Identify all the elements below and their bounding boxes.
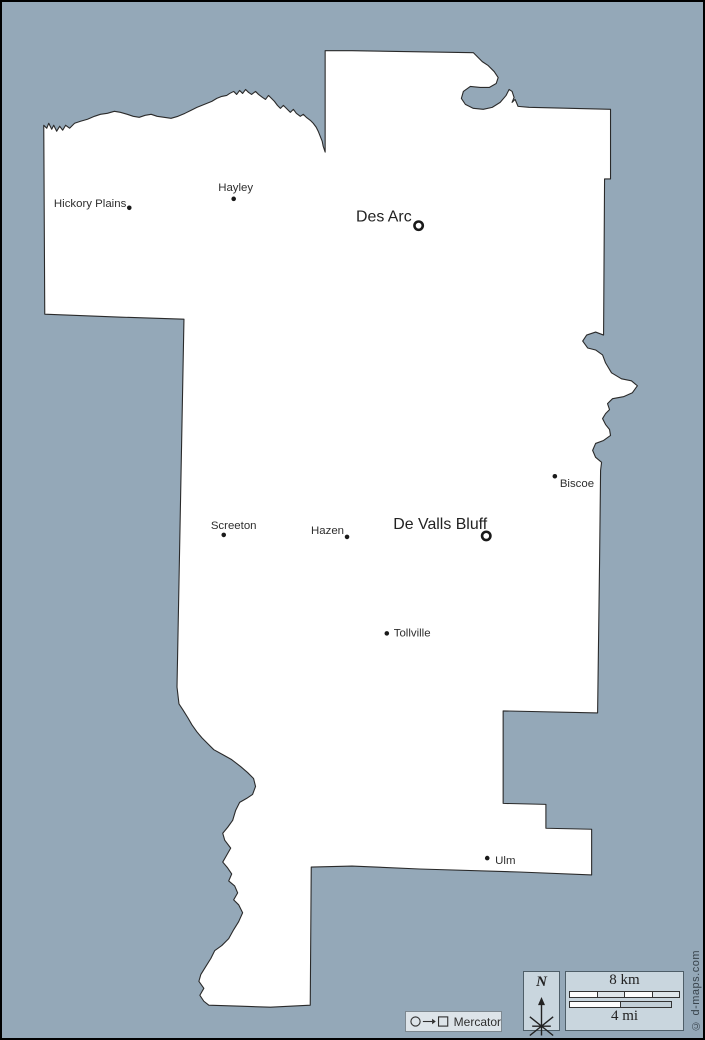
scale-bar-km bbox=[569, 991, 680, 998]
projection-name: Mercator bbox=[454, 1015, 501, 1029]
scale-km-label: 8 km bbox=[566, 972, 683, 989]
city-dot-icon bbox=[221, 533, 226, 538]
city-label: De Valls Bluff bbox=[393, 516, 488, 533]
projection-transform-icon bbox=[410, 1012, 449, 1031]
city-label: Hickory Plains bbox=[54, 198, 127, 210]
scale-segment bbox=[570, 992, 598, 997]
scale-segment bbox=[653, 992, 680, 997]
city-dot-icon bbox=[385, 631, 390, 636]
compass-rose-icon bbox=[524, 989, 559, 1040]
city-label: Des Arc bbox=[356, 209, 412, 226]
city-label: Hazen bbox=[311, 525, 344, 537]
city-label: Ulm bbox=[495, 855, 515, 867]
scale-segment bbox=[598, 992, 626, 997]
city-ring-icon bbox=[414, 222, 422, 230]
city-label: Tollville bbox=[394, 627, 431, 639]
city-hickory-plains: Hickory Plains bbox=[54, 198, 132, 210]
scale-segment bbox=[621, 1002, 671, 1007]
city-label: Biscoe bbox=[560, 478, 594, 490]
city-dot-icon bbox=[127, 205, 132, 210]
city-ring-icon bbox=[482, 532, 490, 540]
scale-segment bbox=[625, 992, 653, 997]
city-label: Hayley bbox=[218, 182, 253, 194]
projection-panel: Mercator bbox=[405, 1011, 502, 1032]
county-map-svg: Hickory Plains Hayley Des Arc Biscoe Scr… bbox=[2, 2, 703, 1038]
city-label: Screeton bbox=[211, 520, 257, 532]
scale-panel: 8 km 4 mi bbox=[565, 971, 684, 1031]
north-label: N bbox=[524, 975, 559, 989]
city-dot-icon bbox=[231, 197, 236, 202]
compass-panel: N bbox=[523, 971, 560, 1031]
map-canvas: Hickory Plains Hayley Des Arc Biscoe Scr… bbox=[0, 0, 705, 1040]
scale-bar-mi bbox=[569, 1001, 672, 1008]
city-dot-icon bbox=[553, 474, 558, 479]
copyright-credit: © d-maps.com bbox=[690, 950, 702, 1032]
city-dot-icon bbox=[345, 535, 350, 540]
city-dot-icon bbox=[485, 856, 490, 861]
scale-mi-label: 4 mi bbox=[566, 1008, 683, 1025]
scale-segment bbox=[570, 1002, 621, 1007]
